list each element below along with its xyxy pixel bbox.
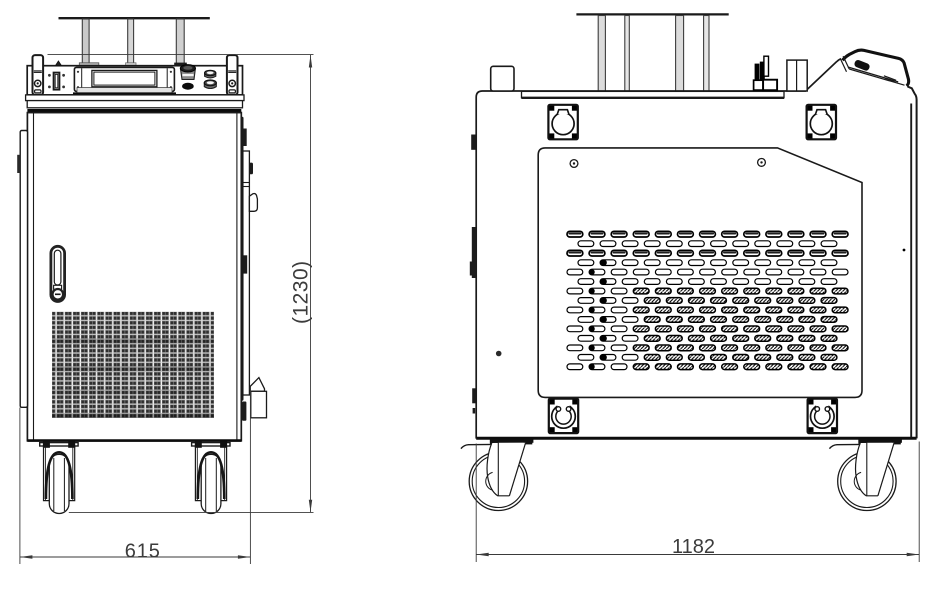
svg-text:615: 615 xyxy=(125,540,161,562)
svg-text:(1230): (1230) xyxy=(290,260,313,324)
svg-text:1182: 1182 xyxy=(672,536,715,558)
